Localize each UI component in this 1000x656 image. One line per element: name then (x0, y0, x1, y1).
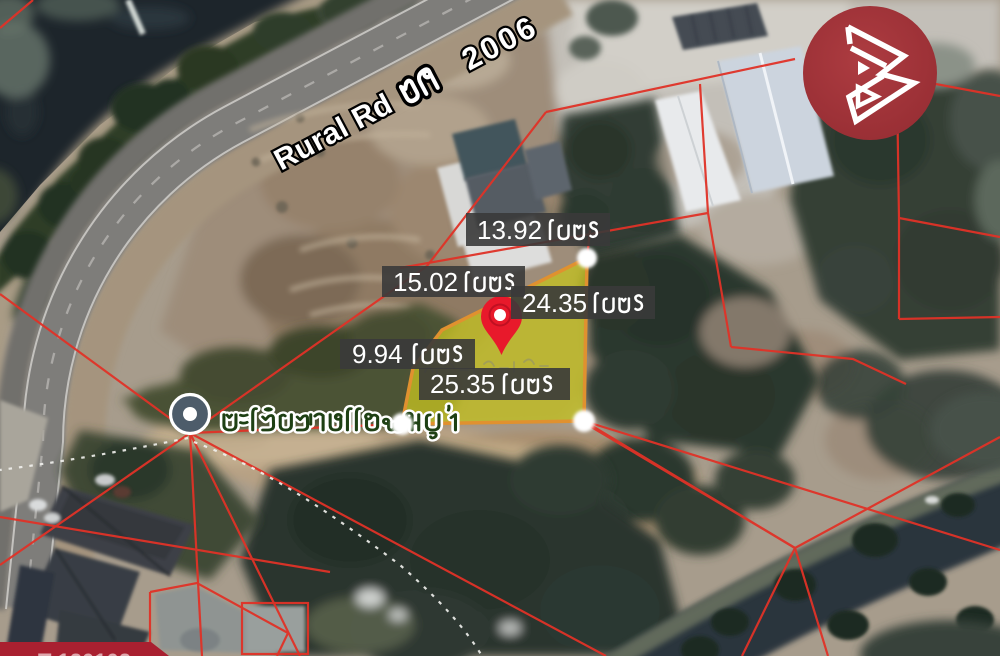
svg-text:T-120102: T-120102 (38, 649, 131, 656)
svg-text:13.92: 13.92 (477, 215, 542, 245)
svg-text:24.35: 24.35 (522, 288, 587, 318)
svg-text:25.35: 25.35 (430, 369, 495, 399)
svg-text:9.94: 9.94 (352, 339, 403, 369)
svg-text:15.02: 15.02 (393, 267, 458, 297)
